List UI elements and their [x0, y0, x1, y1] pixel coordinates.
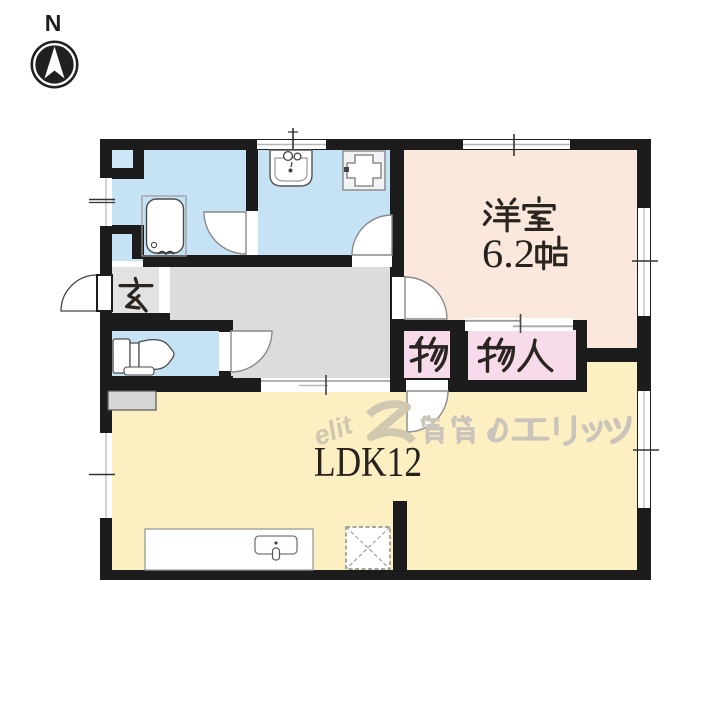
svg-text:LDK12: LDK12	[314, 440, 422, 486]
svg-text:6.2: 6.2	[482, 231, 535, 276]
svg-text:N: N	[45, 10, 62, 36]
